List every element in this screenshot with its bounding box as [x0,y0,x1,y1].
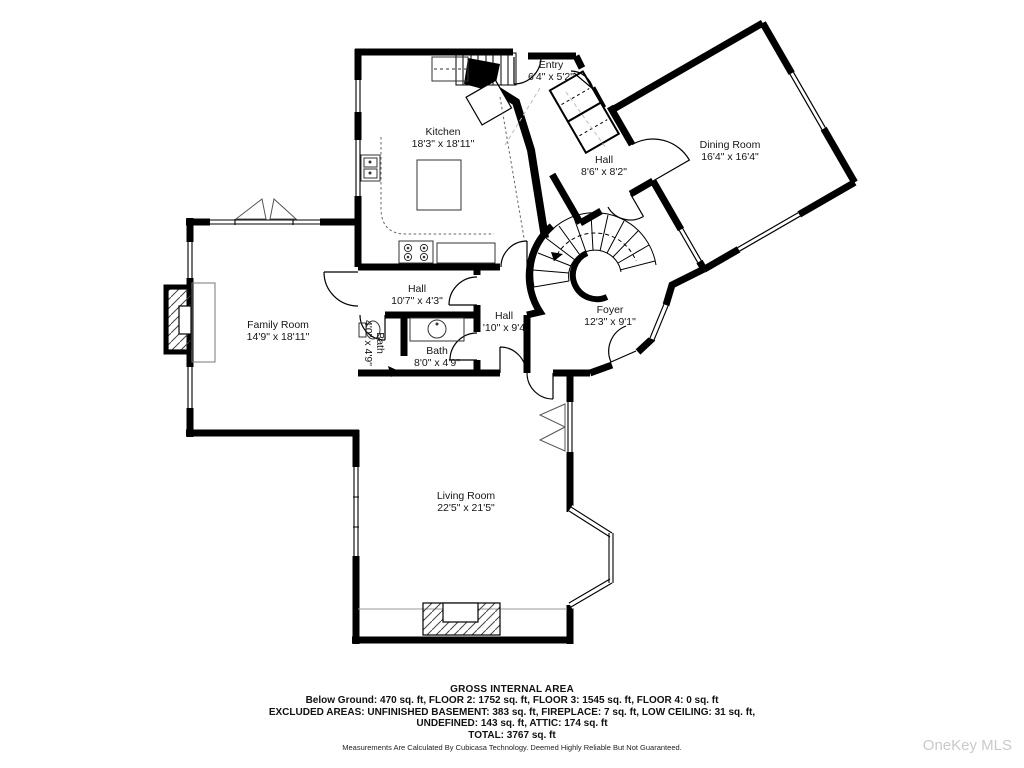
summary-title: GROSS INTERNAL AREA [0,684,1024,695]
room-name: Bath [414,345,460,357]
floor-plan-page: Entry 6'4" x 5'2" Kitchen 18'3" x 18'11"… [0,0,1024,768]
room-label-foyer: Foyer 12'3" x 9'1" [584,304,636,328]
room-dims: 14'9" x 18'11" [247,331,310,343]
room-label-bath-small: Bath 4'0" x 4'9" [362,320,386,366]
room-dims: 4'0" x 4'9" [362,320,374,366]
room-name: Hall [391,283,443,295]
summary-line-excluded: EXCLUDED AREAS: UNFINISHED BASEMENT: 383… [0,707,1024,719]
room-dims: 8'0" x 4'9" [414,357,460,369]
room-name: Dining Room [700,139,761,151]
room-name: Living Room [437,490,495,502]
stove [399,241,433,263]
room-label-dining-room: Dining Room 16'4" x 16'4" [700,139,761,163]
room-dims: 12'3" x 9'1" [584,316,636,328]
room-dims: 10'7" x 4'3" [391,295,443,307]
room-name: Foyer [584,304,636,316]
room-name: Kitchen [412,126,475,138]
room-dims: 8'6" x 8'2" [581,166,627,178]
room-name: Hall [483,310,525,322]
room-label-living-room: Living Room 22'5" x 21'5" [437,490,495,514]
bath-sink [410,318,464,341]
room-label-hall-a: Hall 10'7" x 4'3" [391,283,443,307]
room-dims: 6'4" x 5'2" [528,71,574,83]
closets [550,71,619,152]
kitchen-island [417,160,461,210]
mls-watermark: OneKey MLS [923,737,1012,754]
summary-line-total: TOTAL: 3767 sq. ft [0,730,1024,742]
dining-windows [639,72,857,272]
room-dims: 18'3" x 18'11" [412,138,475,150]
family-room-fireplace [168,289,191,350]
room-name: Bath [374,320,386,366]
room-label-hall-upper: Hall 8'6" x 8'2" [581,154,627,178]
room-dims: '10" x 9'4 [483,322,525,334]
living-room-fireplace [423,603,500,635]
room-dims: 16'4" x 16'4" [700,151,761,163]
room-name: Hall [581,154,627,166]
room-name: Entry [528,59,574,71]
room-label-kitchen: Kitchen 18'3" x 18'11" [412,126,475,150]
summary-disclaimer: Measurements Are Calculated By Cubicasa … [0,743,1024,752]
floor-plan-svg [0,0,1024,768]
decor-layer [192,88,606,609]
room-name: Family Room [247,319,310,331]
room-label-hall-b: Hall '10" x 9'4 [483,310,525,334]
summary-line-floors: Below Ground: 470 sq. ft, FLOOR 2: 1752 … [0,695,1024,707]
kitchen-appliance [466,80,511,125]
rotated-wing [466,0,857,331]
gross-area-summary: GROSS INTERNAL AREA Below Ground: 470 sq… [0,684,1024,752]
summary-line-undefined: UNDEFINED: 143 sq. ft, ATTIC: 174 sq. ft [0,718,1024,730]
room-dims: 22'5" x 21'5" [437,502,495,514]
room-label-family-room: Family Room 14'9" x 18'11" [247,319,310,343]
room-label-bath: Bath 8'0" x 4'9" [414,345,460,369]
kitchen-sink [361,155,380,181]
room-label-entry: Entry 6'4" x 5'2" [528,59,574,83]
